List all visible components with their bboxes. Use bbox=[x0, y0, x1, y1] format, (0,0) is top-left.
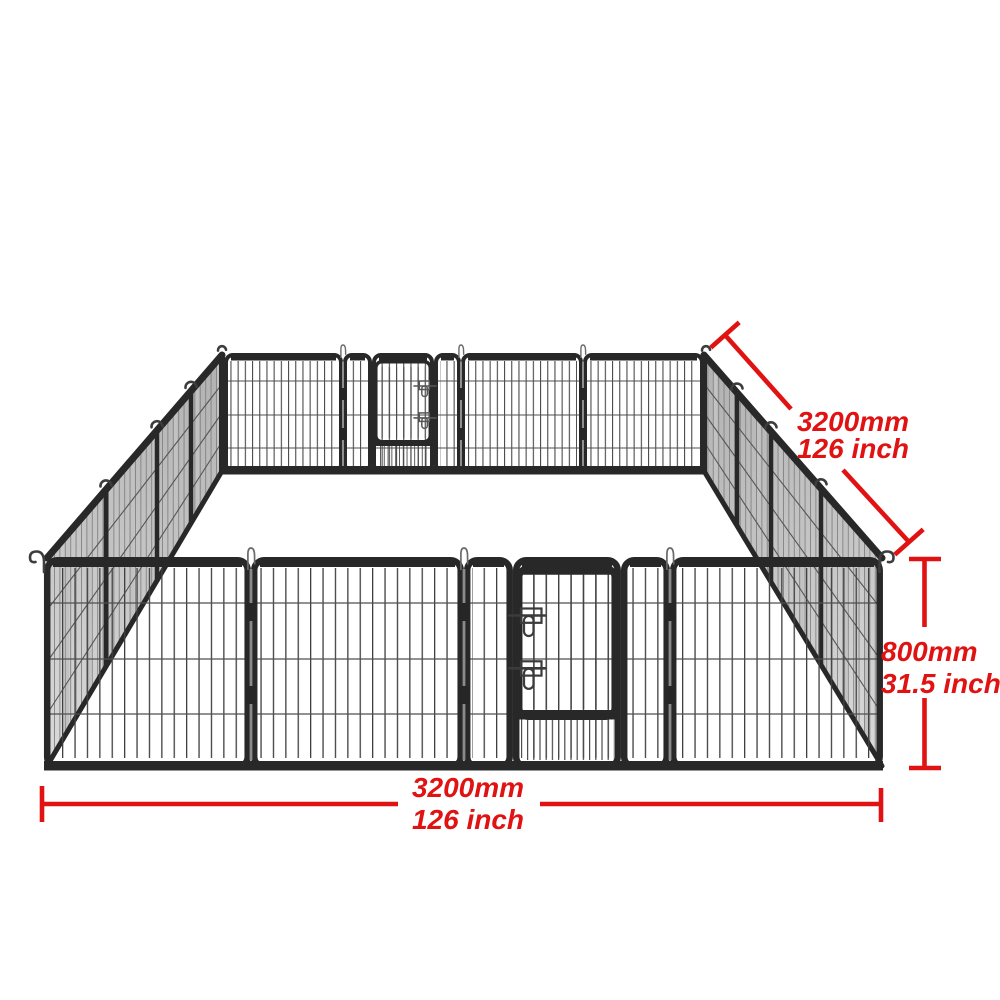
svg-text:126 inch: 126 inch bbox=[797, 433, 909, 464]
svg-text:126 inch: 126 inch bbox=[412, 804, 524, 835]
svg-text:800mm: 800mm bbox=[881, 636, 978, 667]
svg-text:3200mm: 3200mm bbox=[412, 772, 524, 803]
svg-text:31.5 inch: 31.5 inch bbox=[881, 668, 1000, 699]
